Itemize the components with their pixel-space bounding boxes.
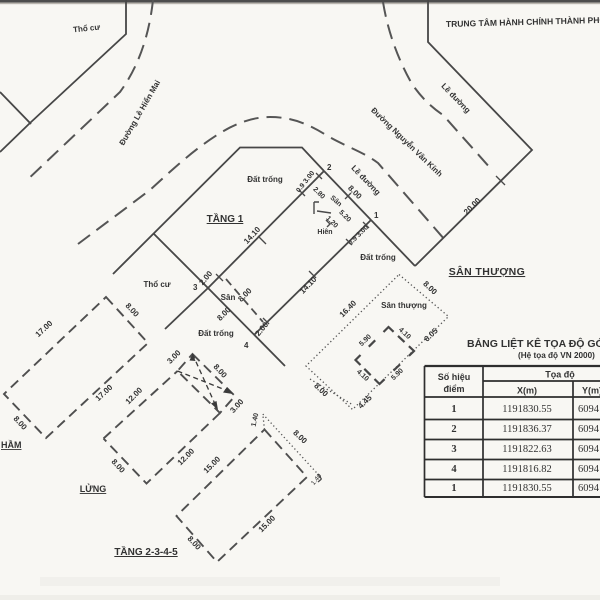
svg-text:1: 1 (451, 483, 456, 494)
svg-text:6094: 6094 (578, 444, 600, 455)
svg-text:Đất trống: Đất trống (360, 253, 396, 262)
svg-text:(Hệ tọa độ VN 2000): (Hệ tọa độ VN 2000) (518, 351, 595, 360)
svg-text:TẦNG 1: TẦNG 1 (207, 212, 244, 225)
svg-text:1: 1 (451, 404, 456, 415)
svg-text:TẦNG 2-3-4-5: TẦNG 2-3-4-5 (114, 545, 178, 558)
svg-text:Đất trống: Đất trống (247, 175, 283, 184)
svg-text:4: 4 (451, 464, 457, 475)
svg-text:1191816.82: 1191816.82 (502, 464, 552, 475)
svg-text:1191830.55: 1191830.55 (502, 483, 552, 494)
svg-text:Số hiệu: Số hiệu (438, 372, 471, 382)
svg-text:1191830.55: 1191830.55 (502, 404, 552, 415)
svg-text:Đất trống: Đất trống (198, 329, 234, 338)
svg-text:Tọa độ: Tọa độ (545, 370, 575, 380)
svg-text:điểm: điểm (443, 384, 464, 394)
svg-text:SÂN THƯỢNG: SÂN THƯỢNG (449, 265, 526, 278)
svg-text:Sân thượng: Sân thượng (381, 301, 427, 310)
svg-text:Thổ cư: Thổ cư (143, 280, 170, 289)
svg-text:Sân: Sân (221, 293, 236, 302)
svg-text:4: 4 (244, 341, 249, 350)
svg-text:2: 2 (327, 163, 332, 172)
svg-text:X(m): X(m) (517, 386, 537, 396)
svg-text:BẢNG LIỆT KÊ TỌA ĐỘ GÓC RANH: BẢNG LIỆT KÊ TỌA ĐỘ GÓC RANH (467, 337, 600, 350)
svg-text:3: 3 (451, 444, 456, 455)
svg-text:3: 3 (193, 283, 198, 292)
svg-text:Y(m): Y(m) (582, 386, 600, 396)
svg-text:1: 1 (374, 211, 379, 220)
svg-text:2: 2 (451, 424, 456, 435)
svg-text:Hiên: Hiên (317, 229, 332, 236)
svg-text:LỬNG: LỬNG (80, 483, 106, 494)
svg-text:1191822.63: 1191822.63 (502, 444, 552, 455)
svg-text:HẦM: HẦM (1, 440, 22, 450)
svg-text:6094: 6094 (578, 483, 600, 494)
svg-text:6094: 6094 (578, 464, 600, 475)
svg-text:1191836.37: 1191836.37 (502, 424, 552, 435)
svg-text:6094: 6094 (578, 404, 600, 415)
svg-text:6094: 6094 (578, 424, 600, 435)
